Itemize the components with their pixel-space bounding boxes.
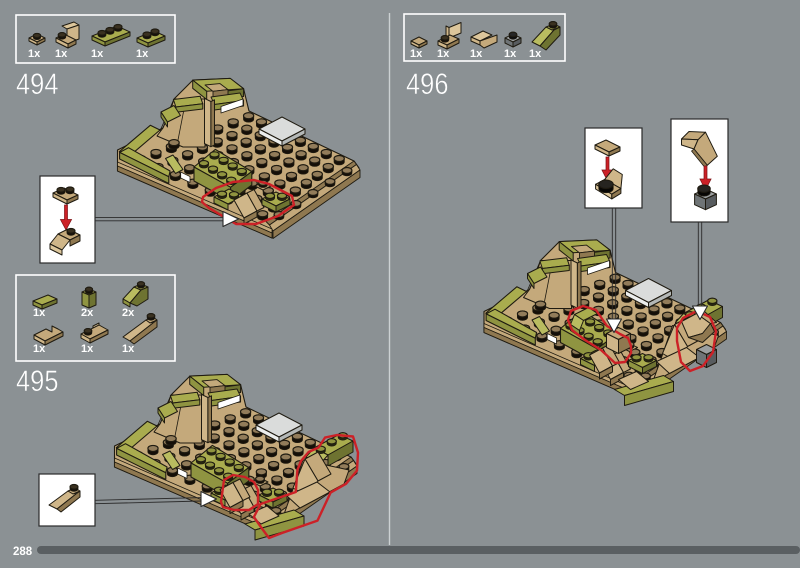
svg-text:1x: 1x [55, 48, 68, 60]
svg-text:1x: 1x [529, 48, 542, 60]
svg-text:288: 288 [13, 546, 33, 558]
svg-text:1x: 1x [91, 48, 104, 60]
svg-text:496: 496 [406, 68, 449, 101]
svg-text:1x: 1x [33, 307, 46, 319]
svg-text:1x: 1x [122, 343, 135, 355]
svg-text:1x: 1x [33, 343, 46, 355]
svg-text:1x: 1x [136, 48, 149, 60]
svg-text:1x: 1x [437, 48, 450, 60]
svg-text:1x: 1x [410, 48, 423, 60]
svg-text:1x: 1x [28, 48, 41, 60]
svg-text:494: 494 [16, 68, 59, 101]
svg-text:2x: 2x [81, 307, 94, 319]
svg-text:2x: 2x [122, 307, 135, 319]
svg-text:1x: 1x [81, 343, 94, 355]
svg-text:1x: 1x [470, 48, 483, 60]
svg-text:1x: 1x [504, 48, 517, 60]
svg-text:495: 495 [16, 365, 59, 398]
